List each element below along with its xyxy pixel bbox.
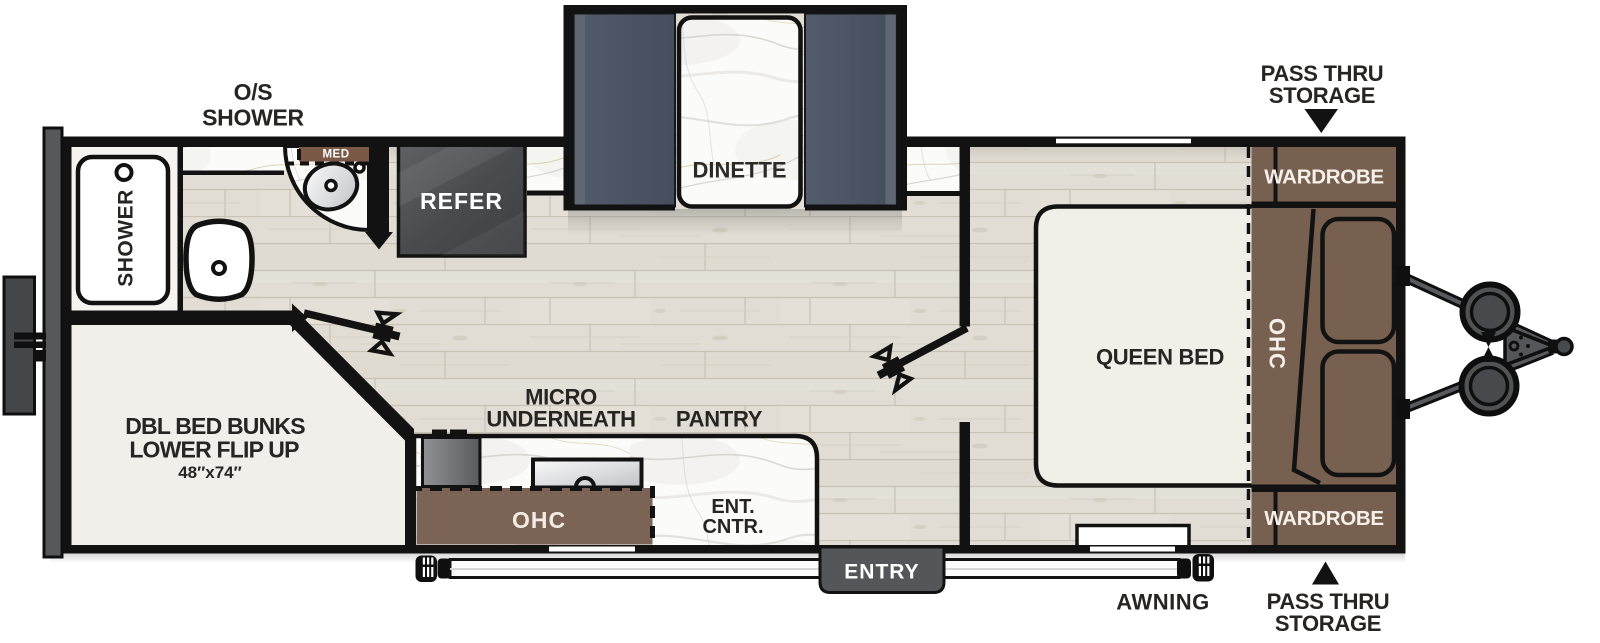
- svg-text:OHC: OHC: [1265, 318, 1290, 370]
- svg-text:DBL BED BUNKS: DBL BED BUNKS: [125, 413, 305, 439]
- svg-text:ENTRY: ENTRY: [844, 561, 919, 584]
- svg-text:WARDROBE: WARDROBE: [1264, 166, 1383, 189]
- svg-text:CNTR.: CNTR.: [702, 516, 763, 538]
- svg-text:STORAGE: STORAGE: [1275, 611, 1381, 636]
- svg-text:SHOWER: SHOWER: [115, 189, 138, 287]
- svg-text:STORAGE: STORAGE: [1269, 83, 1375, 108]
- svg-text:ENT.: ENT.: [711, 496, 754, 518]
- svg-text:SHOWER: SHOWER: [202, 105, 304, 131]
- svg-text:DINETTE: DINETTE: [692, 158, 786, 183]
- svg-text:AWNING: AWNING: [1116, 590, 1209, 615]
- svg-text:WARDROBE: WARDROBE: [1264, 507, 1383, 530]
- svg-text:O/S: O/S: [234, 79, 273, 105]
- svg-text:LOWER FLIP UP: LOWER FLIP UP: [129, 437, 299, 463]
- svg-text:QUEEN BED: QUEEN BED: [1096, 345, 1224, 370]
- svg-text:PANTRY: PANTRY: [676, 407, 763, 432]
- svg-text:OHC: OHC: [512, 507, 566, 533]
- svg-text:MED: MED: [322, 149, 349, 161]
- svg-text:UNDERNEATH: UNDERNEATH: [486, 407, 635, 432]
- svg-text:48″x74″: 48″x74″: [178, 463, 242, 482]
- svg-text:REFER: REFER: [420, 188, 503, 214]
